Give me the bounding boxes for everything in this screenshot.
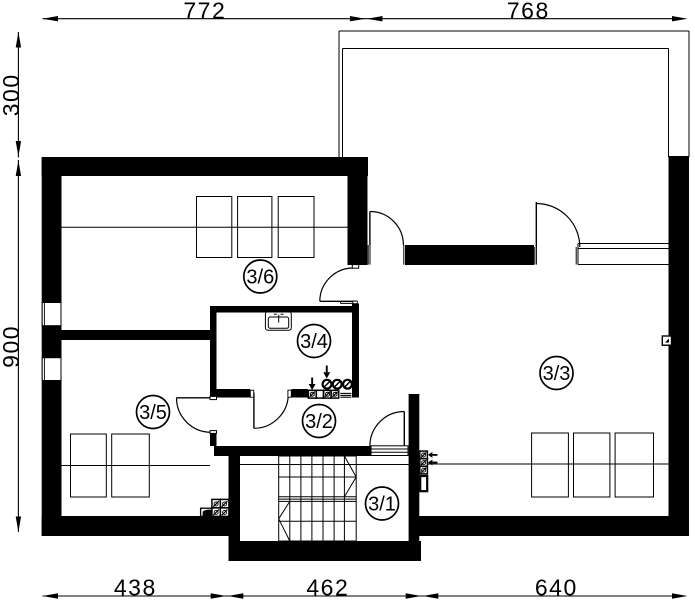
svg-text:300: 300	[0, 73, 24, 116]
svg-text:3/6: 3/6	[246, 267, 274, 289]
svg-text:772: 772	[183, 0, 226, 23]
svg-text:3/2: 3/2	[305, 411, 333, 433]
svg-text:640: 640	[535, 575, 578, 600]
svg-text:3/1: 3/1	[368, 494, 396, 516]
svg-text:768: 768	[507, 0, 550, 23]
svg-text:3/3: 3/3	[543, 363, 571, 385]
svg-text:462: 462	[306, 575, 349, 600]
svg-text:3/4: 3/4	[300, 331, 328, 353]
svg-text:900: 900	[0, 325, 24, 368]
svg-text:3/5: 3/5	[139, 402, 167, 424]
svg-text:438: 438	[114, 575, 157, 600]
